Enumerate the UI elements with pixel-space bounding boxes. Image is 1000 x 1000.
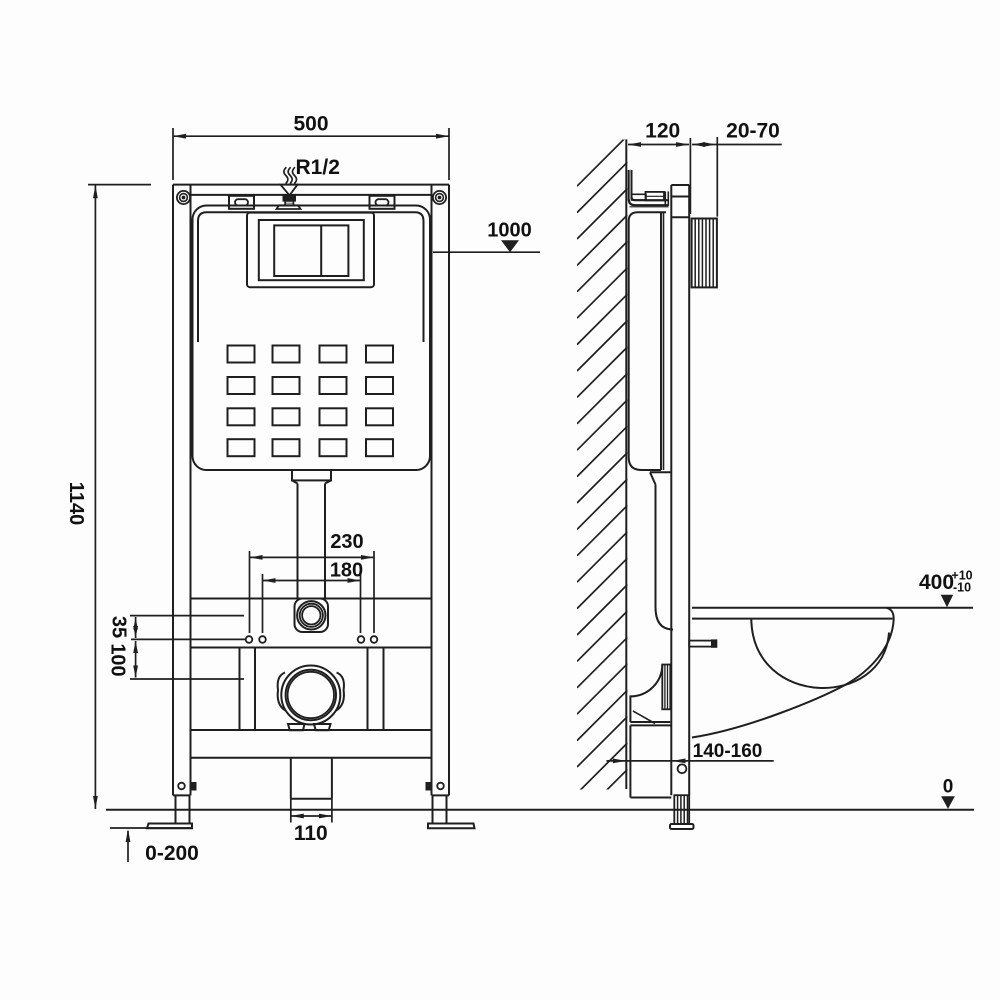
svg-text:R1/2: R1/2 [296, 156, 340, 179]
svg-text:140-160: 140-160 [693, 741, 763, 762]
svg-text:1000: 1000 [487, 220, 532, 242]
svg-text:0: 0 [943, 777, 954, 798]
svg-text:180: 180 [330, 560, 363, 582]
svg-text:1140: 1140 [65, 482, 87, 525]
svg-text:35: 35 [108, 616, 130, 638]
svg-text:0-200: 0-200 [145, 842, 199, 865]
svg-text:400: 400 [919, 571, 954, 594]
svg-text:20-70: 20-70 [726, 120, 780, 143]
svg-text:100: 100 [107, 643, 129, 676]
svg-text:500: 500 [293, 113, 328, 136]
svg-text:-10: -10 [953, 581, 971, 595]
svg-text:120: 120 [645, 120, 680, 143]
svg-text:110: 110 [294, 822, 328, 845]
svg-text:230: 230 [330, 531, 363, 553]
